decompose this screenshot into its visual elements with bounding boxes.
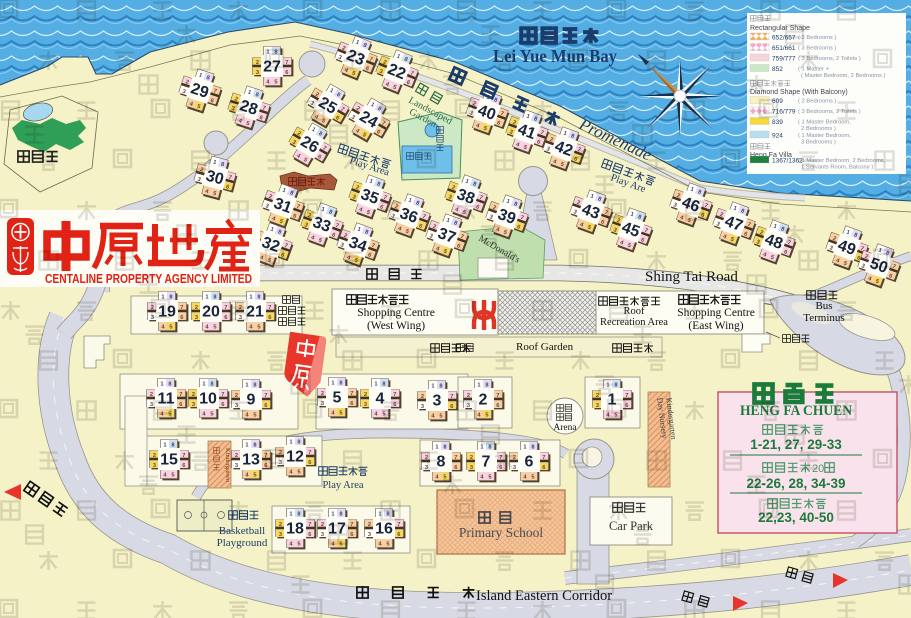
svg-text:759/777: 759/777 (772, 55, 796, 62)
svg-text:3 Bedrooms ): 3 Bedrooms ) (801, 140, 836, 146)
svg-text:4: 4 (376, 391, 385, 408)
svg-text:Terminus: Terminus (803, 312, 844, 324)
svg-text:8: 8 (437, 454, 446, 471)
svg-text:Primary School: Primary School (459, 525, 544, 540)
svg-text:( 2 Bedrooms ): ( 2 Bedrooms ) (798, 99, 836, 105)
svg-text:( 1 Master Bedroom,: ( 1 Master Bedroom, (798, 133, 851, 139)
svg-text:(West Wing): (West Wing) (367, 320, 425, 332)
svg-text:2 Bedrooms ): 2 Bedrooms ) (801, 126, 836, 132)
svg-text:Bus: Bus (815, 300, 832, 312)
svg-text:16: 16 (375, 521, 393, 538)
svg-text:( 3 Bedrooms ): ( 3 Bedrooms ) (798, 46, 836, 52)
svg-text:Kindergarten: Kindergarten (224, 448, 231, 483)
svg-text:Lei Yue Mun Bay: Lei Yue Mun Bay (493, 46, 617, 66)
svg-text:924: 924 (772, 132, 783, 139)
svg-text:( 1 Master Bedroom,: ( 1 Master Bedroom, (798, 120, 851, 126)
svg-text:Playground: Playground (217, 537, 268, 549)
svg-text:Shing Tai Road: Shing Tai Road (645, 269, 738, 285)
svg-text:( 1 Master +: ( 1 Master + (798, 67, 830, 73)
svg-text:15: 15 (160, 452, 178, 469)
svg-text:21: 21 (246, 304, 264, 321)
svg-text:Play Area: Play Area (322, 480, 363, 491)
svg-text:Shopping Centre: Shopping Centre (677, 307, 755, 319)
svg-text:651/661: 651/661 (772, 45, 796, 52)
svg-text:HENG FA CHUEN: HENG FA CHUEN (740, 403, 852, 419)
svg-text:Island Eastern Corridor: Island Eastern Corridor (476, 588, 612, 604)
svg-text:20: 20 (202, 304, 220, 321)
svg-text:5: 5 (333, 390, 342, 407)
svg-text:( Master Bedroom, 2 Bedrooms ): ( Master Bedroom, 2 Bedrooms ) (801, 73, 885, 79)
svg-text:3: 3 (433, 393, 442, 410)
svg-text:(East Wing): (East Wing) (688, 320, 743, 332)
svg-text:13: 13 (242, 452, 260, 469)
svg-text:716/779: 716/779 (772, 108, 796, 115)
svg-text:Diamond Shape (With Balcony): Diamond Shape (With Balcony) (750, 89, 848, 96)
svg-text:7: 7 (482, 454, 491, 471)
svg-text:2: 2 (479, 392, 488, 409)
svg-text:Basketball: Basketball (219, 525, 265, 537)
svg-text:9: 9 (247, 392, 256, 409)
svg-text:Arena: Arena (553, 423, 577, 433)
svg-text:839: 839 (772, 119, 783, 126)
svg-text:6: 6 (525, 454, 534, 471)
svg-text:18: 18 (286, 521, 304, 538)
svg-text:852: 852 (772, 66, 783, 73)
svg-text:12: 12 (286, 449, 304, 466)
svg-text:Roof Garden: Roof Garden (516, 341, 574, 353)
svg-text:10: 10 (199, 391, 217, 408)
